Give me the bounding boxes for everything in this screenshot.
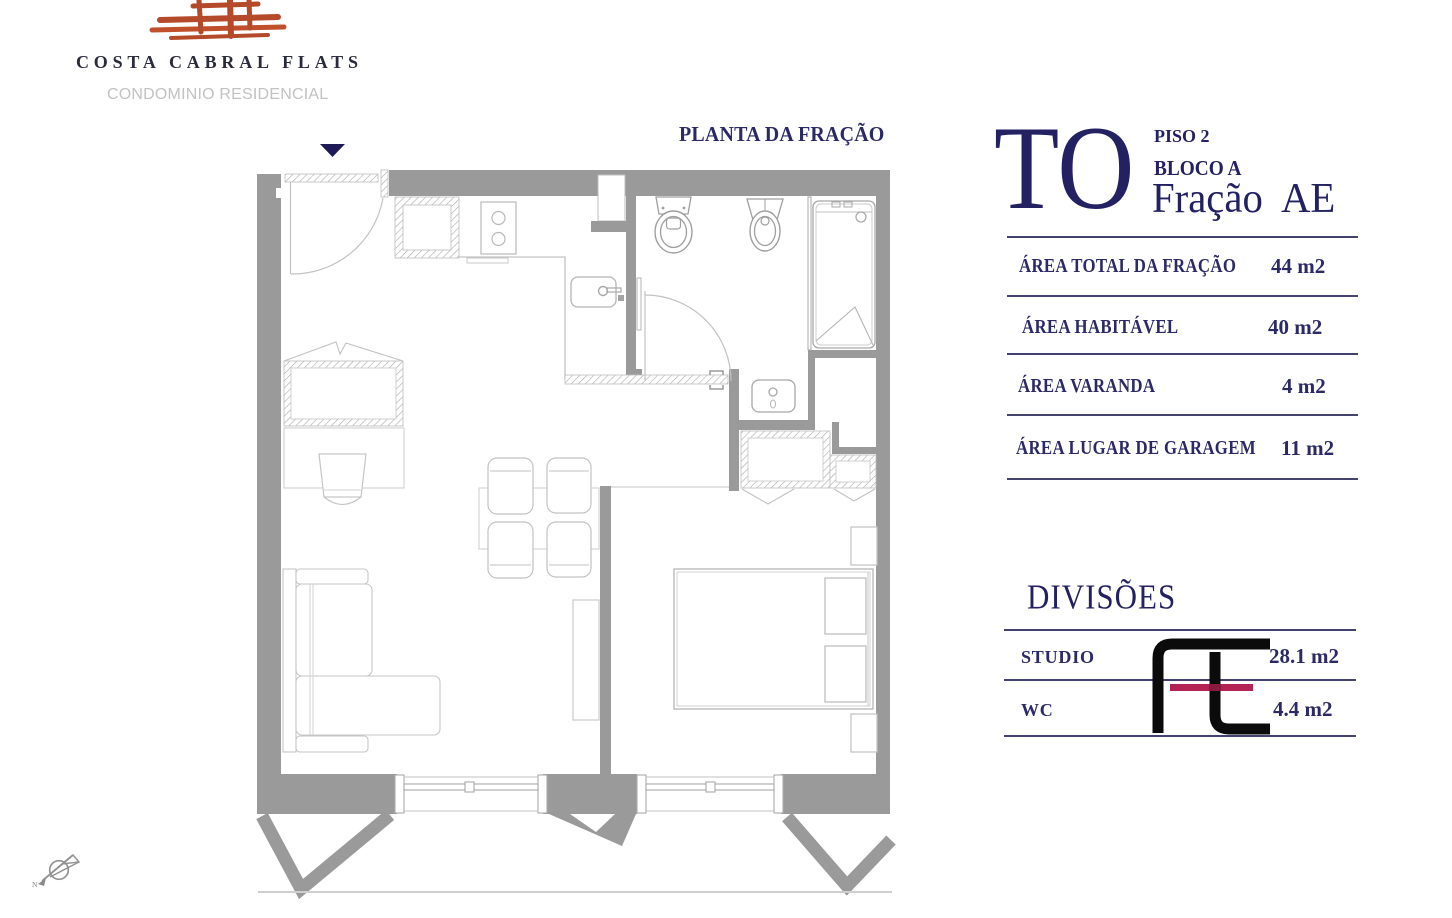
svg-text:N: N [32, 880, 38, 889]
